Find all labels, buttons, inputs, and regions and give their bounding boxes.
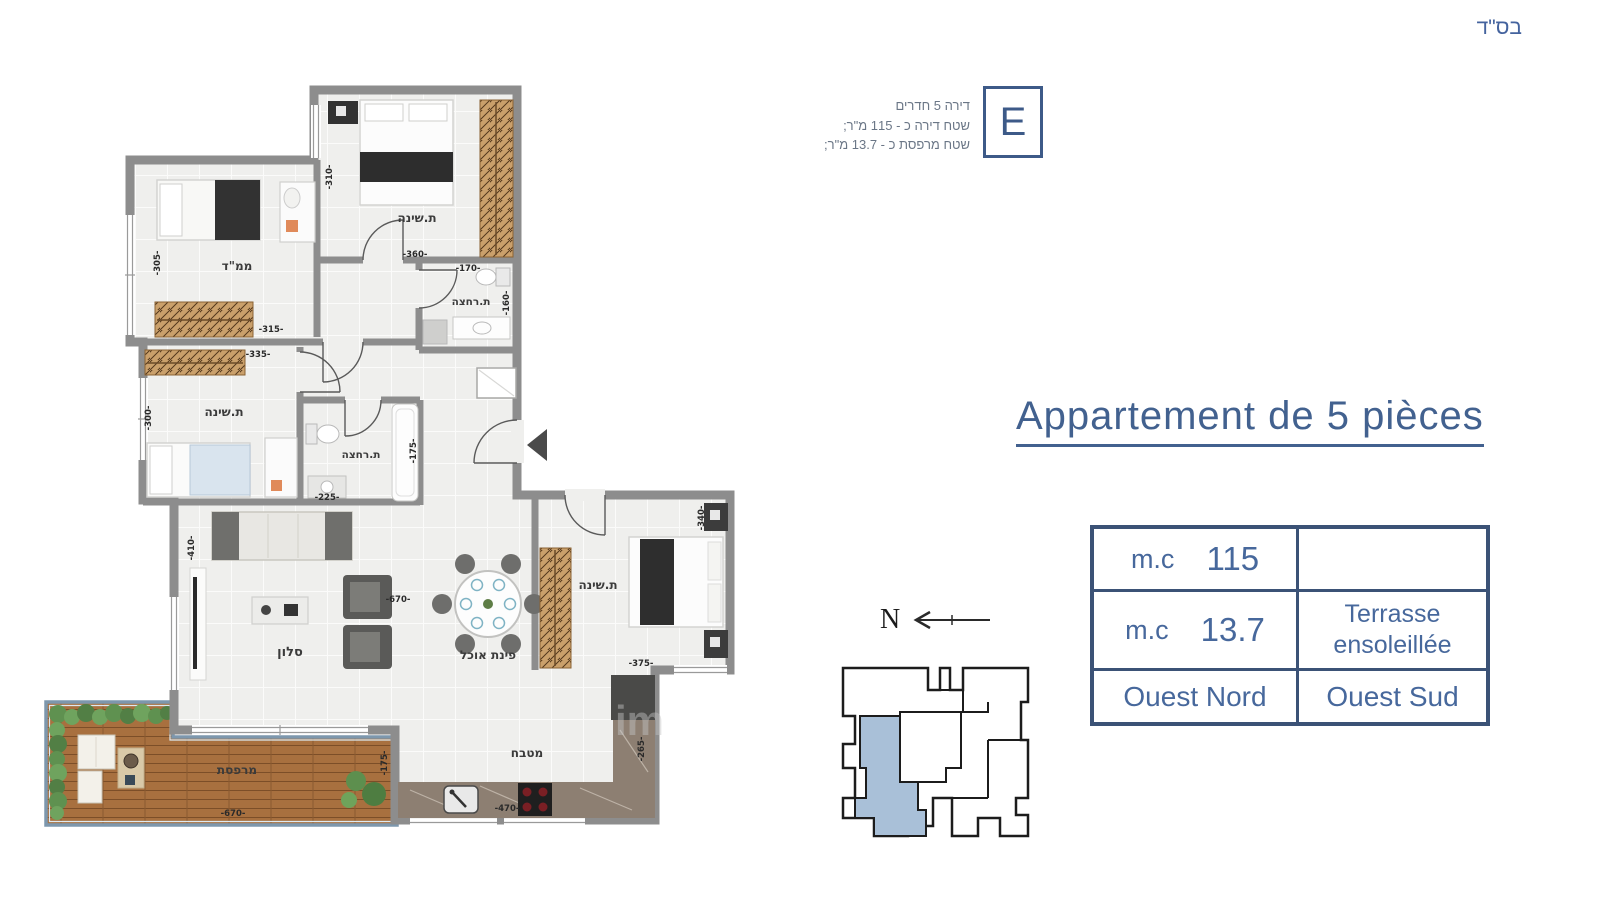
area-unit-label: m.c — [1131, 544, 1175, 575]
bed — [360, 100, 453, 205]
unit-letter: E — [1000, 100, 1027, 145]
window-living — [169, 597, 179, 690]
toilet-tank — [496, 268, 510, 286]
unit-info: דירה 5 חדרים שטח דירה כ - 115 מ"ר; שטח מ… — [812, 96, 970, 155]
spec-terrace-area-cell: m.c 13.7 — [1094, 592, 1299, 671]
spec-empty-cell — [1299, 529, 1486, 592]
label-kitchen: מטבח — [511, 746, 543, 760]
label-living: סלון — [277, 645, 303, 660]
label-bedroom-left: ת.שינה — [204, 405, 243, 419]
page-title: Appartement de 5 pièces — [1016, 394, 1484, 447]
toilet — [317, 425, 339, 443]
terrace-slider — [192, 725, 368, 735]
key-plan — [828, 652, 1033, 844]
dim-bath1-w: -170- — [456, 264, 481, 274]
window-bedroom-top — [311, 105, 321, 158]
terrace-unit-label: m.c — [1125, 615, 1169, 646]
dim-br2-w: -335- — [246, 350, 271, 360]
label-bedroom-top: ת.שינה — [397, 211, 436, 225]
dim-bath2-h: -175- — [409, 438, 419, 463]
label-dining: פינת אוכל — [460, 648, 516, 662]
dim-bath1-h: -160- — [502, 290, 512, 315]
dim-mamad-h: -305- — [153, 250, 163, 275]
dim-living-h: -410- — [187, 535, 197, 560]
north-label: N — [880, 604, 900, 636]
dim-br3-h: -340- — [697, 505, 707, 530]
dim-br3-w: -375- — [629, 659, 654, 669]
terrace-value: 13.7 — [1201, 611, 1265, 649]
floor-plan: im ת.שינה ממ"ד ת.רחצה ת.שינה ת.רחצה סלון… — [40, 80, 740, 850]
bsd-text: בס"ד — [1477, 16, 1522, 40]
spec-terrace-label-cell: Terrasse ensoleillée — [1299, 592, 1486, 671]
dim-terrace-h: -175- — [380, 750, 390, 775]
dim-terrace-w: -670- — [221, 809, 246, 819]
dim-br1-w: -360- — [403, 250, 428, 260]
area-value: 115 — [1206, 540, 1259, 578]
toilet-tank — [306, 424, 317, 444]
west-south-label: Ouest Sud — [1326, 681, 1458, 713]
sink — [444, 786, 478, 813]
desk — [280, 182, 315, 242]
vanity — [453, 317, 510, 339]
desk — [265, 438, 297, 497]
bed — [147, 443, 250, 497]
dim-living-w: -670- — [386, 595, 411, 605]
orientation-west-south: Ouest Sud — [1299, 671, 1486, 722]
label-terrace: מרפסת — [217, 763, 257, 777]
tv-console — [190, 568, 206, 680]
window-bedroom-right — [674, 665, 727, 675]
unit-info-line3: שטח מרפסת כ - 13.7 מ"ר; — [812, 135, 970, 155]
window-mamad — [125, 215, 135, 335]
label-mamad: ממ"ד — [222, 259, 253, 273]
label-bath-top: ת.רחצה — [452, 296, 491, 308]
dim-br2-h: -300- — [144, 405, 154, 430]
entrance-opening — [511, 420, 524, 463]
stove — [518, 783, 552, 816]
shower — [423, 320, 447, 344]
terrace-rug-table — [118, 748, 144, 788]
north-arrow-icon — [904, 607, 994, 633]
label-bath-mid: ת.רחצה — [342, 449, 381, 461]
bedroom3-door-opening — [565, 489, 605, 501]
spec-area-cell: m.c 115 — [1094, 529, 1299, 592]
dim-kitchen-h: -265- — [637, 736, 647, 761]
label-bedroom-right: ת.שינה — [578, 578, 617, 592]
dim-bath2-w: -225- — [315, 493, 340, 503]
unit-info-line1: דירה 5 חדרים — [812, 96, 970, 116]
terrace-word1: Terrasse — [1333, 599, 1451, 630]
sofa — [212, 512, 352, 560]
unit-info-line2: שטח דירה כ - 115 מ"ר; — [812, 116, 970, 136]
hall-cabinet — [477, 368, 516, 398]
orientation-west-north: Ouest Nord — [1094, 671, 1299, 722]
bed — [157, 180, 260, 240]
spec-table: m.c 115 m.c 13.7 Terrasse ensoleillée Ou… — [1090, 525, 1490, 726]
dim-mamad-w: -315- — [259, 325, 284, 335]
bed — [629, 537, 723, 627]
terrace-word2: ensoleillée — [1333, 630, 1451, 661]
west-north-label: Ouest Nord — [1123, 681, 1266, 713]
dim-br1-h: -310- — [325, 164, 335, 189]
entrance-arrow-icon — [527, 429, 547, 461]
unit-letter-box: E — [983, 86, 1043, 158]
compass: N — [880, 604, 994, 636]
dim-kitchen-w: -470- — [495, 804, 520, 814]
coffee-table — [252, 597, 308, 624]
